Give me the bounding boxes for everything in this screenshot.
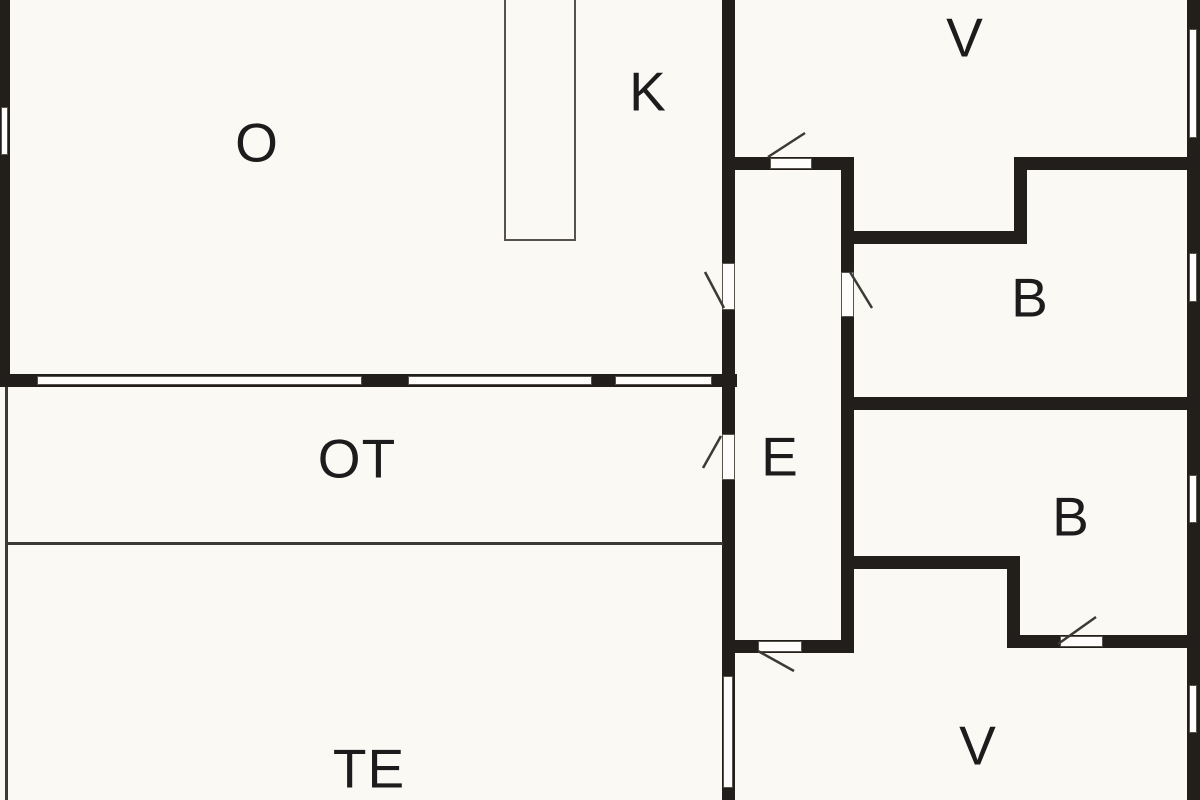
v-b1-step-wall: [1014, 157, 1027, 244]
v-b1-east-wall: [1014, 157, 1200, 170]
o-south-window-3: [615, 376, 712, 385]
room-label-ot: OT: [318, 432, 396, 487]
room-label-v-top: V: [946, 11, 984, 66]
door-swing-ot: [703, 436, 721, 468]
room-label-e: E: [761, 430, 799, 485]
b2-east-window: [1189, 475, 1197, 523]
b1-south-wall: [841, 397, 1200, 410]
room-label-v-bottom: V: [959, 719, 997, 774]
o-west-window: [1, 107, 8, 155]
door-leaf-v2: [758, 641, 802, 652]
left-outer-wall: [0, 0, 10, 387]
o-south-window-2: [408, 376, 592, 385]
room-label-te: TE: [333, 742, 405, 797]
room-label-b-top: B: [1011, 271, 1049, 326]
floor-plan: OKVBEOTBTEV: [0, 0, 1200, 800]
kitchen-island: [504, 0, 576, 241]
b2-south-west-wall: [848, 556, 1020, 569]
door-leaf-v: [770, 158, 812, 169]
door-swing-v2: [758, 651, 794, 671]
v2-east-window: [1189, 685, 1197, 733]
room-label-o: O: [235, 116, 279, 171]
b1-east-window: [1189, 253, 1197, 302]
door-leaf-b2: [1060, 636, 1103, 647]
door-leaf-ot: [722, 434, 735, 480]
te-v-window: [723, 676, 733, 788]
ot-west-line: [5, 387, 8, 800]
b2-south-east-wall: [1007, 635, 1200, 648]
v-east-window: [1189, 29, 1197, 138]
door-leaf-k: [722, 263, 735, 310]
ot-te-line: [5, 542, 723, 545]
room-label-b-bottom: B: [1052, 490, 1090, 545]
o-south-window-1: [37, 376, 362, 385]
room-label-k: K: [629, 65, 667, 120]
b1-north-wall: [848, 231, 1020, 244]
door-swing-v: [768, 133, 805, 157]
door-leaf-b1: [841, 272, 854, 317]
